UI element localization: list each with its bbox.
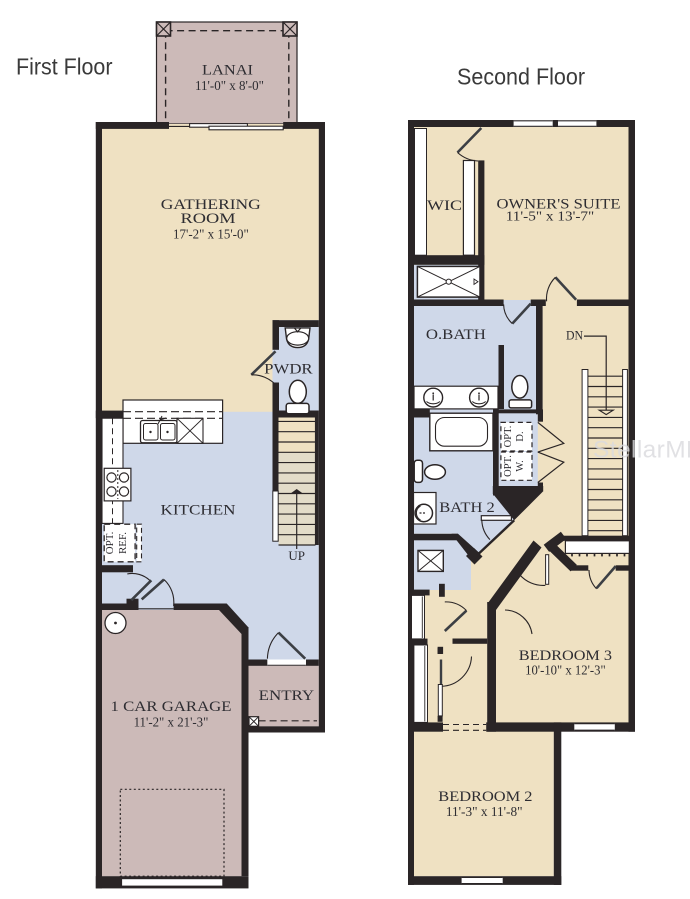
- svg-text:1 CAR GARAGE: 1 CAR GARAGE: [111, 699, 232, 715]
- svg-text:KITCHEN: KITCHEN: [161, 503, 236, 519]
- svg-text:BATH 2: BATH 2: [439, 500, 495, 516]
- svg-text:11'-3" x 11'-8": 11'-3" x 11'-8": [446, 804, 523, 819]
- svg-text:11'-0" x 8'-0": 11'-0" x 8'-0": [195, 78, 264, 93]
- svg-text:StellarMLS: StellarMLS: [593, 437, 690, 464]
- svg-text:11'-5" x 13'-7": 11'-5" x 13'-7": [506, 209, 595, 224]
- svg-text:O.BATH: O.BATH: [426, 327, 486, 343]
- svg-text:First Floor: First Floor: [16, 54, 113, 80]
- svg-text:17'-2" x 15'-0": 17'-2" x 15'-0": [173, 227, 249, 242]
- svg-text:OPT.: OPT.: [503, 455, 514, 477]
- svg-text:ENTRY: ENTRY: [259, 688, 315, 704]
- svg-text:REF.: REF.: [117, 532, 129, 554]
- svg-text:OPT.: OPT.: [503, 426, 514, 448]
- svg-text:PWDR: PWDR: [264, 362, 313, 378]
- svg-text:Second Floor: Second Floor: [457, 64, 585, 90]
- svg-text:UP: UP: [288, 548, 305, 563]
- svg-text:OPT.: OPT.: [104, 531, 116, 554]
- svg-text:ROOM: ROOM: [181, 211, 236, 227]
- svg-text:11'-2" x 21'-3": 11'-2" x 21'-3": [134, 715, 209, 730]
- svg-text:LANAI: LANAI: [202, 63, 253, 79]
- svg-text:D.: D.: [515, 431, 526, 441]
- svg-text:DN: DN: [566, 329, 583, 343]
- svg-text:10'-10" x 12'-3": 10'-10" x 12'-3": [525, 663, 606, 678]
- svg-text:WIC: WIC: [427, 198, 462, 214]
- svg-text:BEDROOM 2: BEDROOM 2: [438, 789, 532, 805]
- svg-text:W.: W.: [515, 460, 526, 472]
